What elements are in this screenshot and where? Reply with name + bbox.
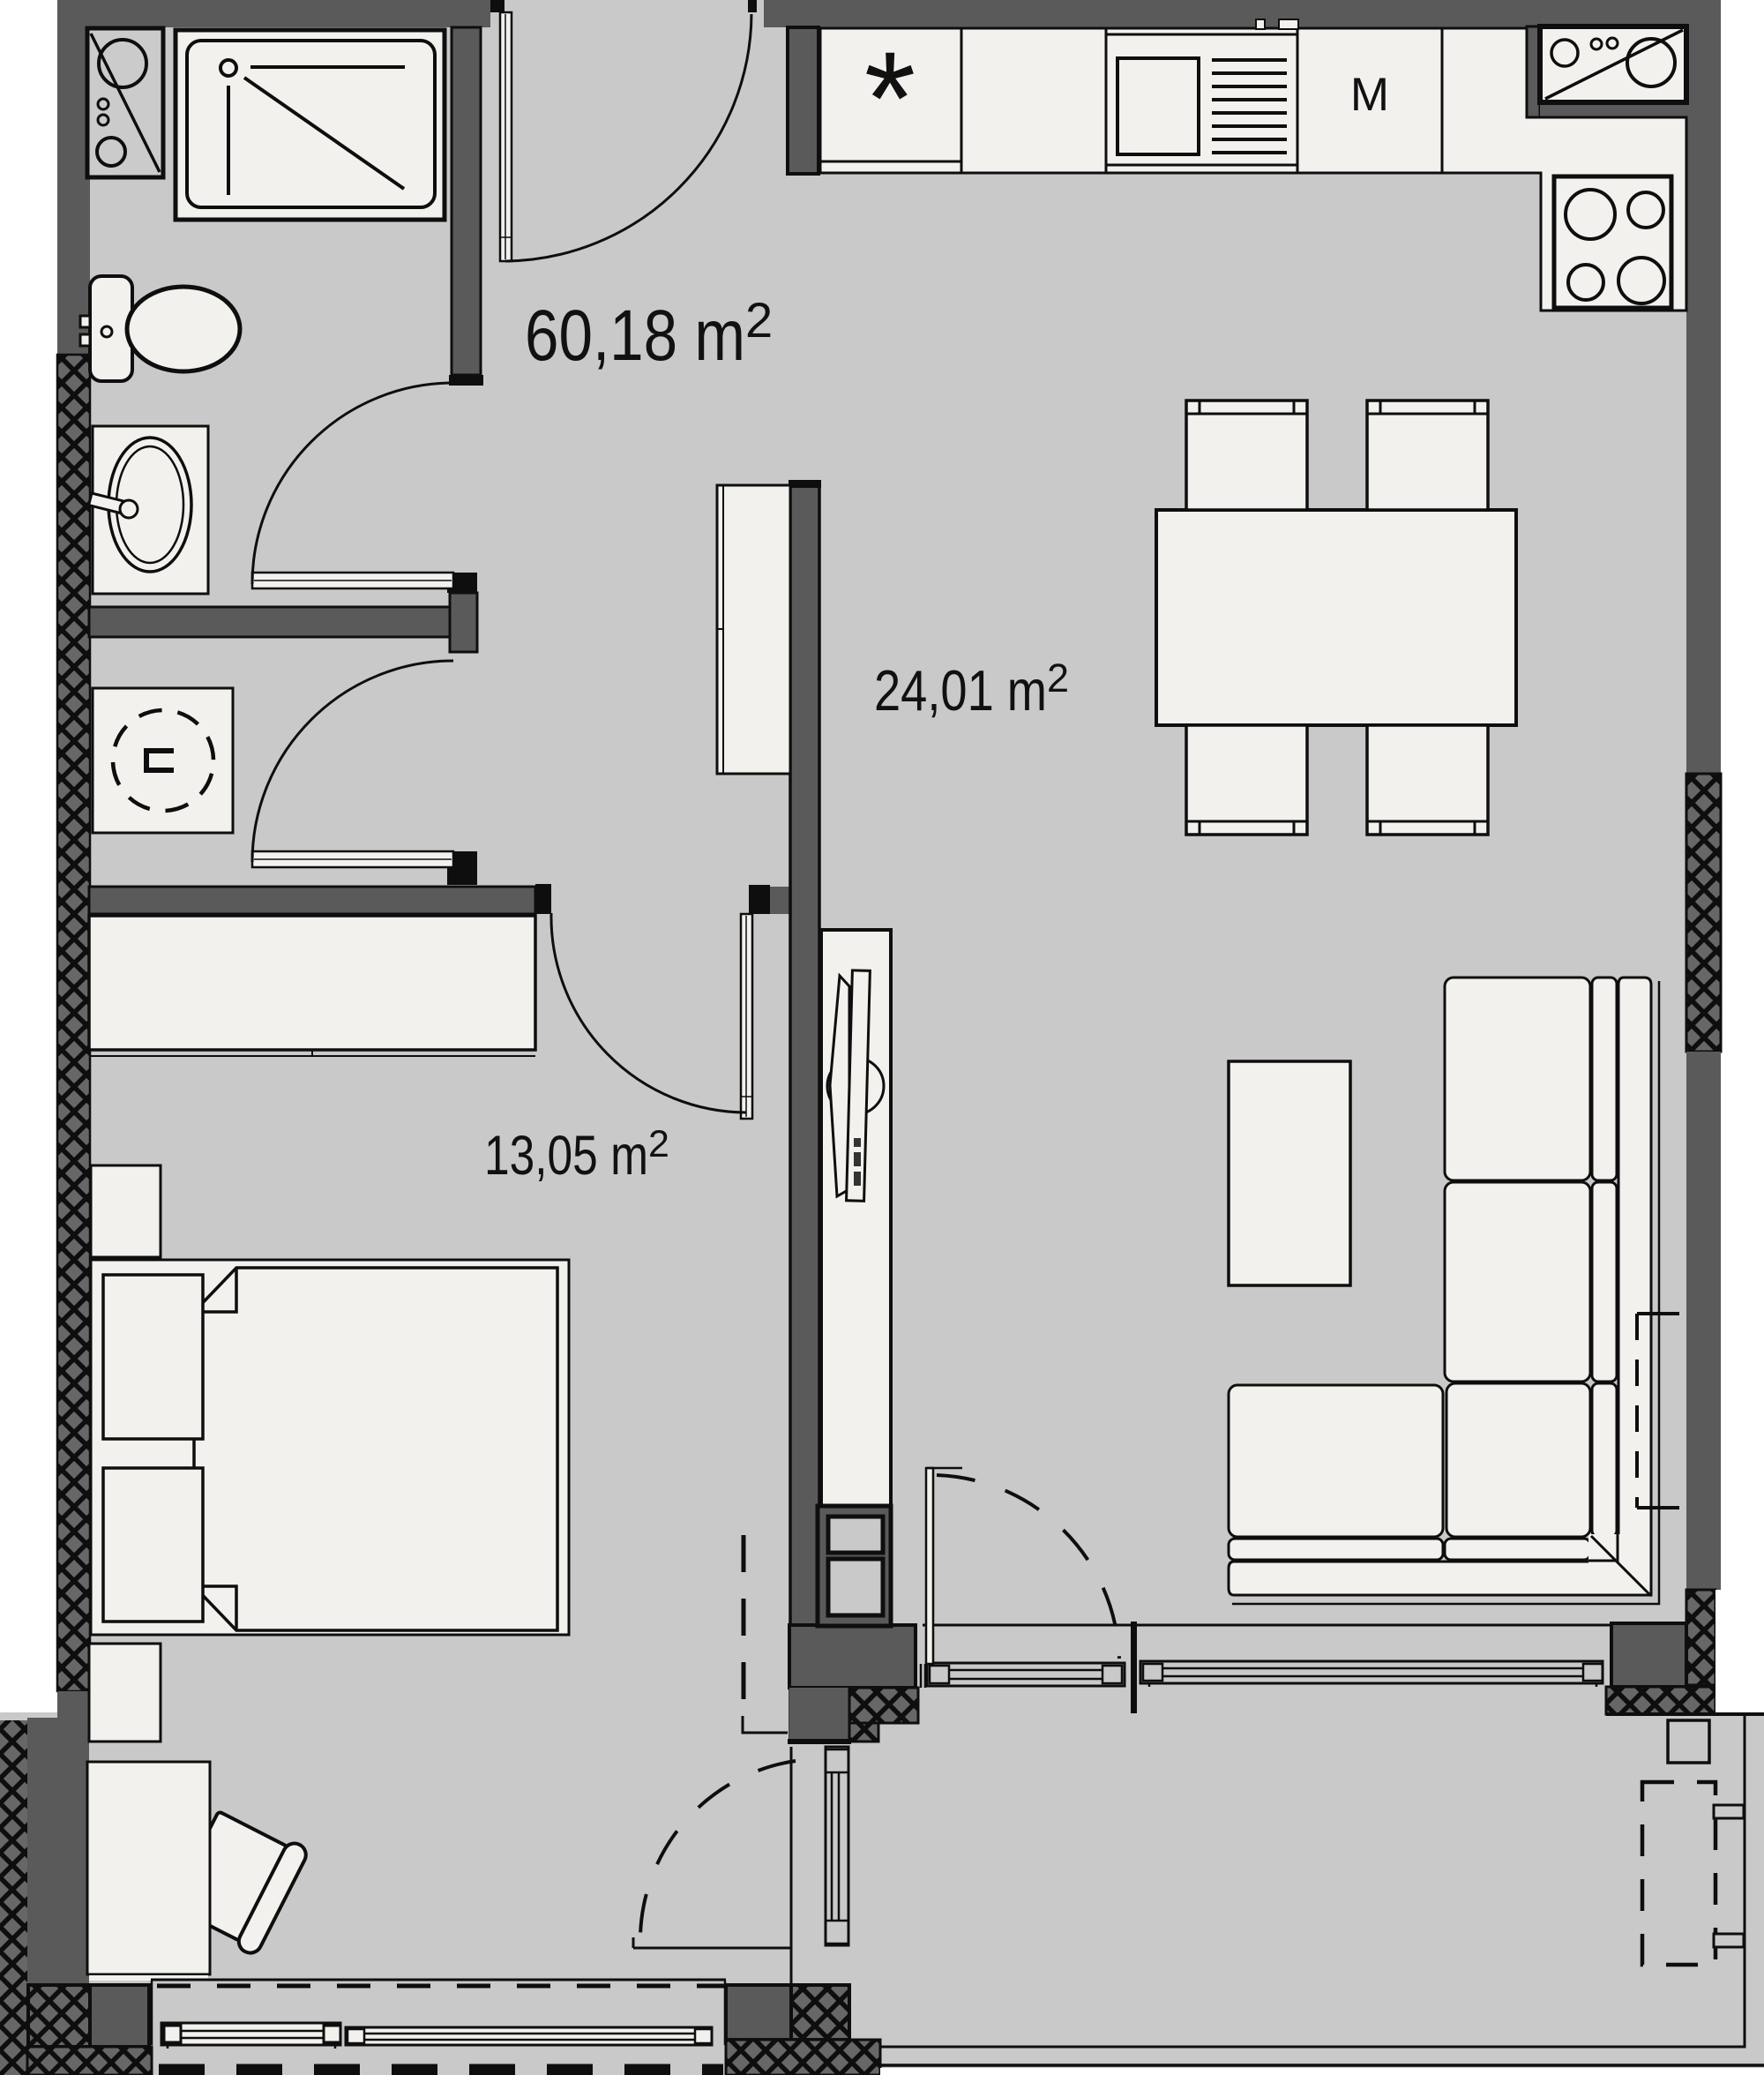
svg-text:M: M — [1350, 69, 1389, 121]
svg-text:13,05 m2: 13,05 m2 — [484, 1123, 669, 1187]
svg-text:*: * — [864, 24, 916, 172]
svg-text:24,01 m2: 24,01 m2 — [874, 655, 1069, 723]
svg-text:60,18 m2: 60,18 m2 — [525, 292, 773, 376]
